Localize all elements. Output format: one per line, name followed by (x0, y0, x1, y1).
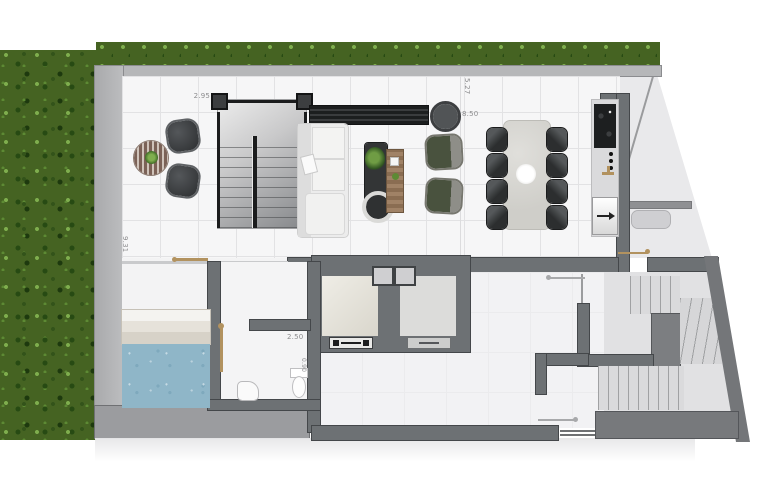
sliding-door-icon (176, 258, 208, 261)
toilet-bowl (293, 377, 305, 397)
ac-unit (632, 211, 670, 228)
round-pouf (433, 104, 458, 129)
bathroom-wall (208, 400, 320, 410)
coffee-table-plant (365, 147, 385, 171)
armchair-green-1 (426, 135, 462, 169)
dimension-label: 9.31 (121, 236, 128, 252)
door-hinge (546, 275, 551, 280)
dining-centerpiece (516, 164, 536, 184)
door-swing-icon (538, 419, 576, 421)
dining-chair (487, 206, 507, 229)
armchair-green-2 (426, 179, 462, 213)
stair-post-left (213, 95, 226, 108)
media-console (310, 106, 428, 124)
dimension-label: 2.50 (287, 334, 303, 341)
pool-deck-wall (95, 406, 309, 438)
outdoor-chair-1 (166, 119, 200, 153)
sofa-chaise (306, 194, 344, 234)
knob (609, 159, 613, 163)
dining-chair (547, 154, 567, 177)
knob (609, 152, 613, 156)
dining-chair (547, 206, 567, 229)
outer-wall-top (95, 66, 661, 76)
dining-chair (547, 180, 567, 203)
runner-plant (392, 173, 399, 180)
stair-center-rail (252, 136, 257, 228)
dining-chair (487, 180, 507, 203)
sofa-cushion (313, 160, 344, 190)
dimension-label: 8.50 (462, 111, 478, 118)
duct-shaft (396, 268, 414, 284)
terrace-divider-wall (629, 202, 691, 208)
outer-wall-left (95, 66, 123, 412)
sliding-door-icon (560, 434, 598, 436)
kitchen-wall-right (617, 94, 629, 272)
sidewalk-bottom (95, 438, 695, 462)
cooktop (594, 104, 616, 148)
stair-rail-left (217, 112, 220, 228)
emergency-stair-lower-flight (598, 366, 684, 410)
stair-wall-bottom (596, 412, 738, 438)
stair-rail-top (228, 100, 296, 103)
elevator-door-cap (333, 340, 339, 346)
outdoor-chair-2 (166, 164, 200, 198)
emergency-stair-upper-flight (630, 276, 680, 314)
dining-chair (547, 128, 567, 151)
door-swing-icon (618, 252, 648, 254)
elevator-1-shaft (322, 276, 378, 336)
terrace-exterior (620, 68, 720, 258)
elevator-door-line (341, 342, 361, 344)
hall-wall-bottom (312, 426, 558, 440)
door-hinge (172, 257, 177, 262)
hedge-left (0, 50, 96, 440)
main-stair-treads (218, 142, 306, 228)
hall-wall (536, 354, 546, 394)
pool-steps (122, 310, 210, 344)
table-plant (145, 151, 158, 164)
pool (122, 344, 210, 408)
dining-chair (487, 154, 507, 177)
bathroom-wall (250, 320, 310, 330)
lawn-strip-top (96, 42, 660, 68)
door-arrow-icon (609, 212, 615, 220)
door-hinge (573, 417, 578, 422)
structural-gridline (460, 76, 461, 260)
elevator-door-line (419, 342, 439, 344)
door-hinge (218, 323, 224, 329)
dining-chair (487, 128, 507, 151)
faucet-icon (607, 166, 610, 175)
elevator-2-shaft (400, 276, 456, 336)
floor-plan: 2.95 5.27 8.50 9.31 2.50 0.90 (0, 0, 768, 491)
elevator-door-cap (363, 340, 369, 346)
duct-shaft (374, 268, 392, 284)
sliding-door-icon (560, 430, 598, 432)
door-hinge (645, 249, 650, 254)
sofa-cushion (313, 128, 344, 158)
door-swing-icon (549, 277, 585, 279)
door-swing-icon (220, 328, 223, 372)
washbasin (238, 382, 258, 400)
dimension-label: 0.90 (300, 358, 306, 372)
stair-wall (589, 355, 653, 366)
dimension-label: 5.27 (463, 78, 470, 94)
dimension-label: 2.95 (186, 93, 210, 100)
runner-decor (391, 158, 398, 165)
emergency-stair-core (652, 314, 680, 366)
